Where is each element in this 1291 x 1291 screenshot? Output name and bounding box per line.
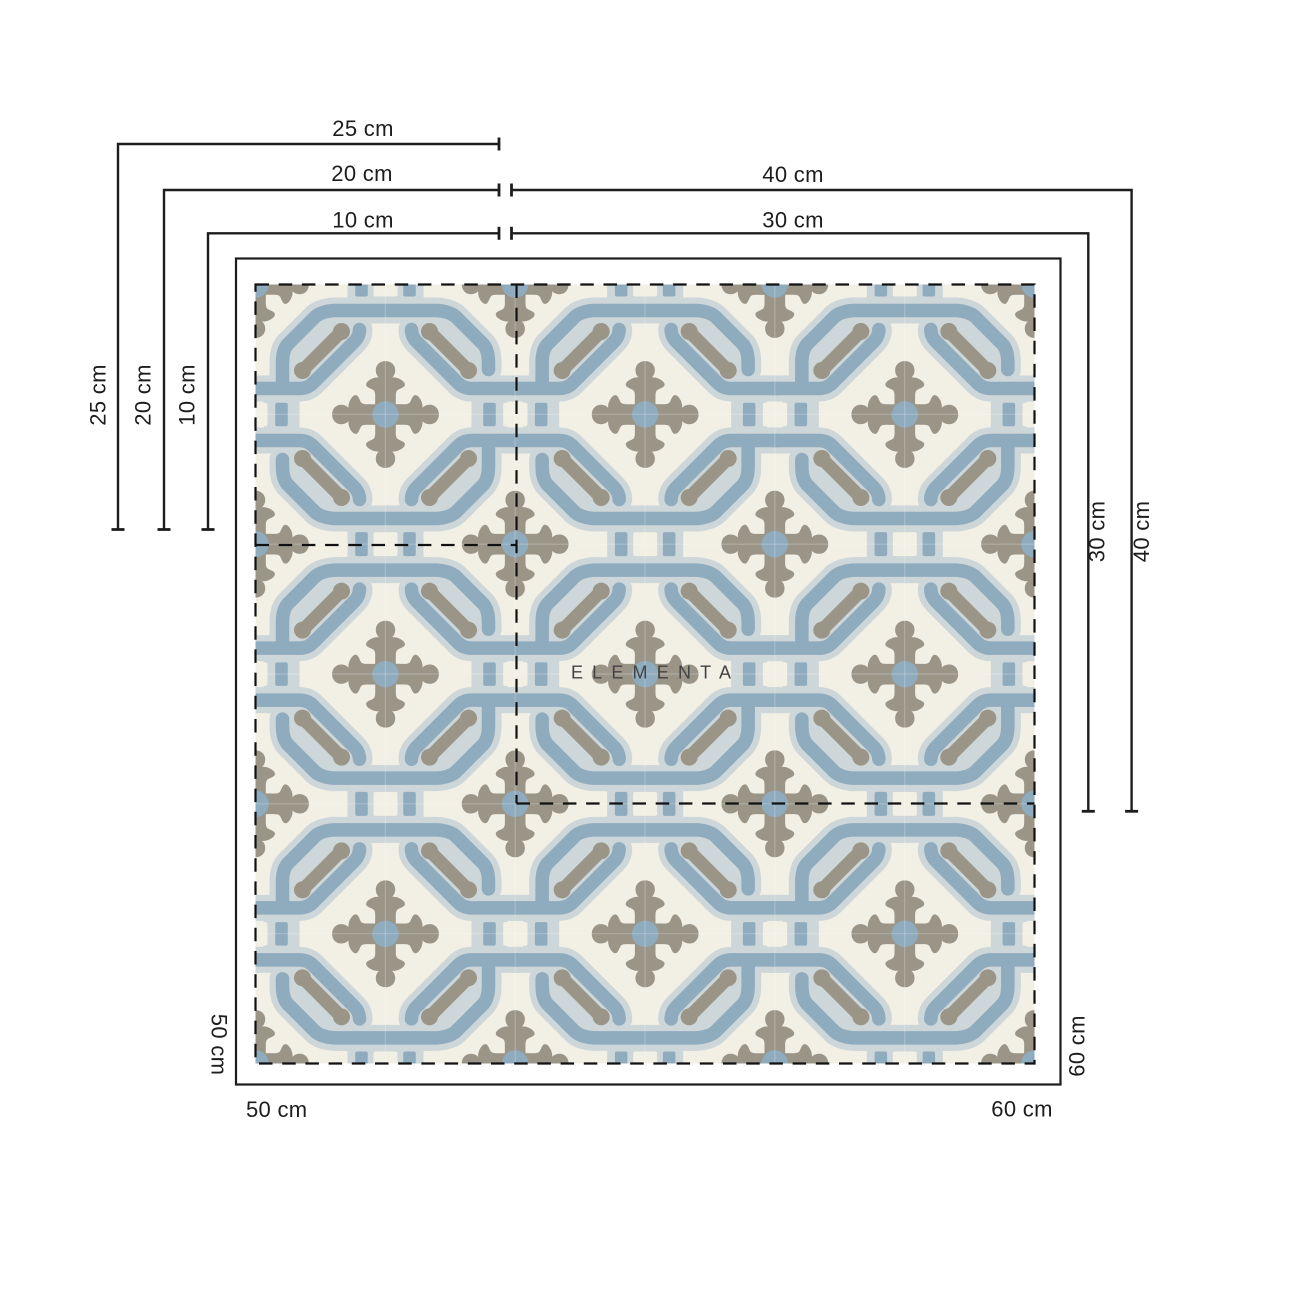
svg-text:20 cm: 20 cm bbox=[331, 161, 392, 186]
svg-text:10 cm: 10 cm bbox=[175, 364, 200, 425]
svg-text:25 cm: 25 cm bbox=[86, 364, 111, 425]
svg-text:20 cm: 20 cm bbox=[131, 364, 156, 425]
svg-text:30 cm: 30 cm bbox=[1085, 501, 1110, 562]
svg-text:ELEMENTA: ELEMENTA bbox=[571, 663, 740, 683]
svg-text:40 cm: 40 cm bbox=[762, 162, 823, 187]
svg-text:10 cm: 10 cm bbox=[332, 207, 393, 232]
svg-text:50 cm: 50 cm bbox=[207, 1014, 232, 1075]
svg-text:40 cm: 40 cm bbox=[1129, 501, 1154, 562]
svg-text:50 cm: 50 cm bbox=[246, 1097, 307, 1122]
svg-text:60 cm: 60 cm bbox=[1065, 1015, 1090, 1076]
svg-text:30 cm: 30 cm bbox=[762, 207, 823, 232]
svg-text:25 cm: 25 cm bbox=[332, 116, 393, 141]
svg-text:60 cm: 60 cm bbox=[991, 1097, 1052, 1122]
